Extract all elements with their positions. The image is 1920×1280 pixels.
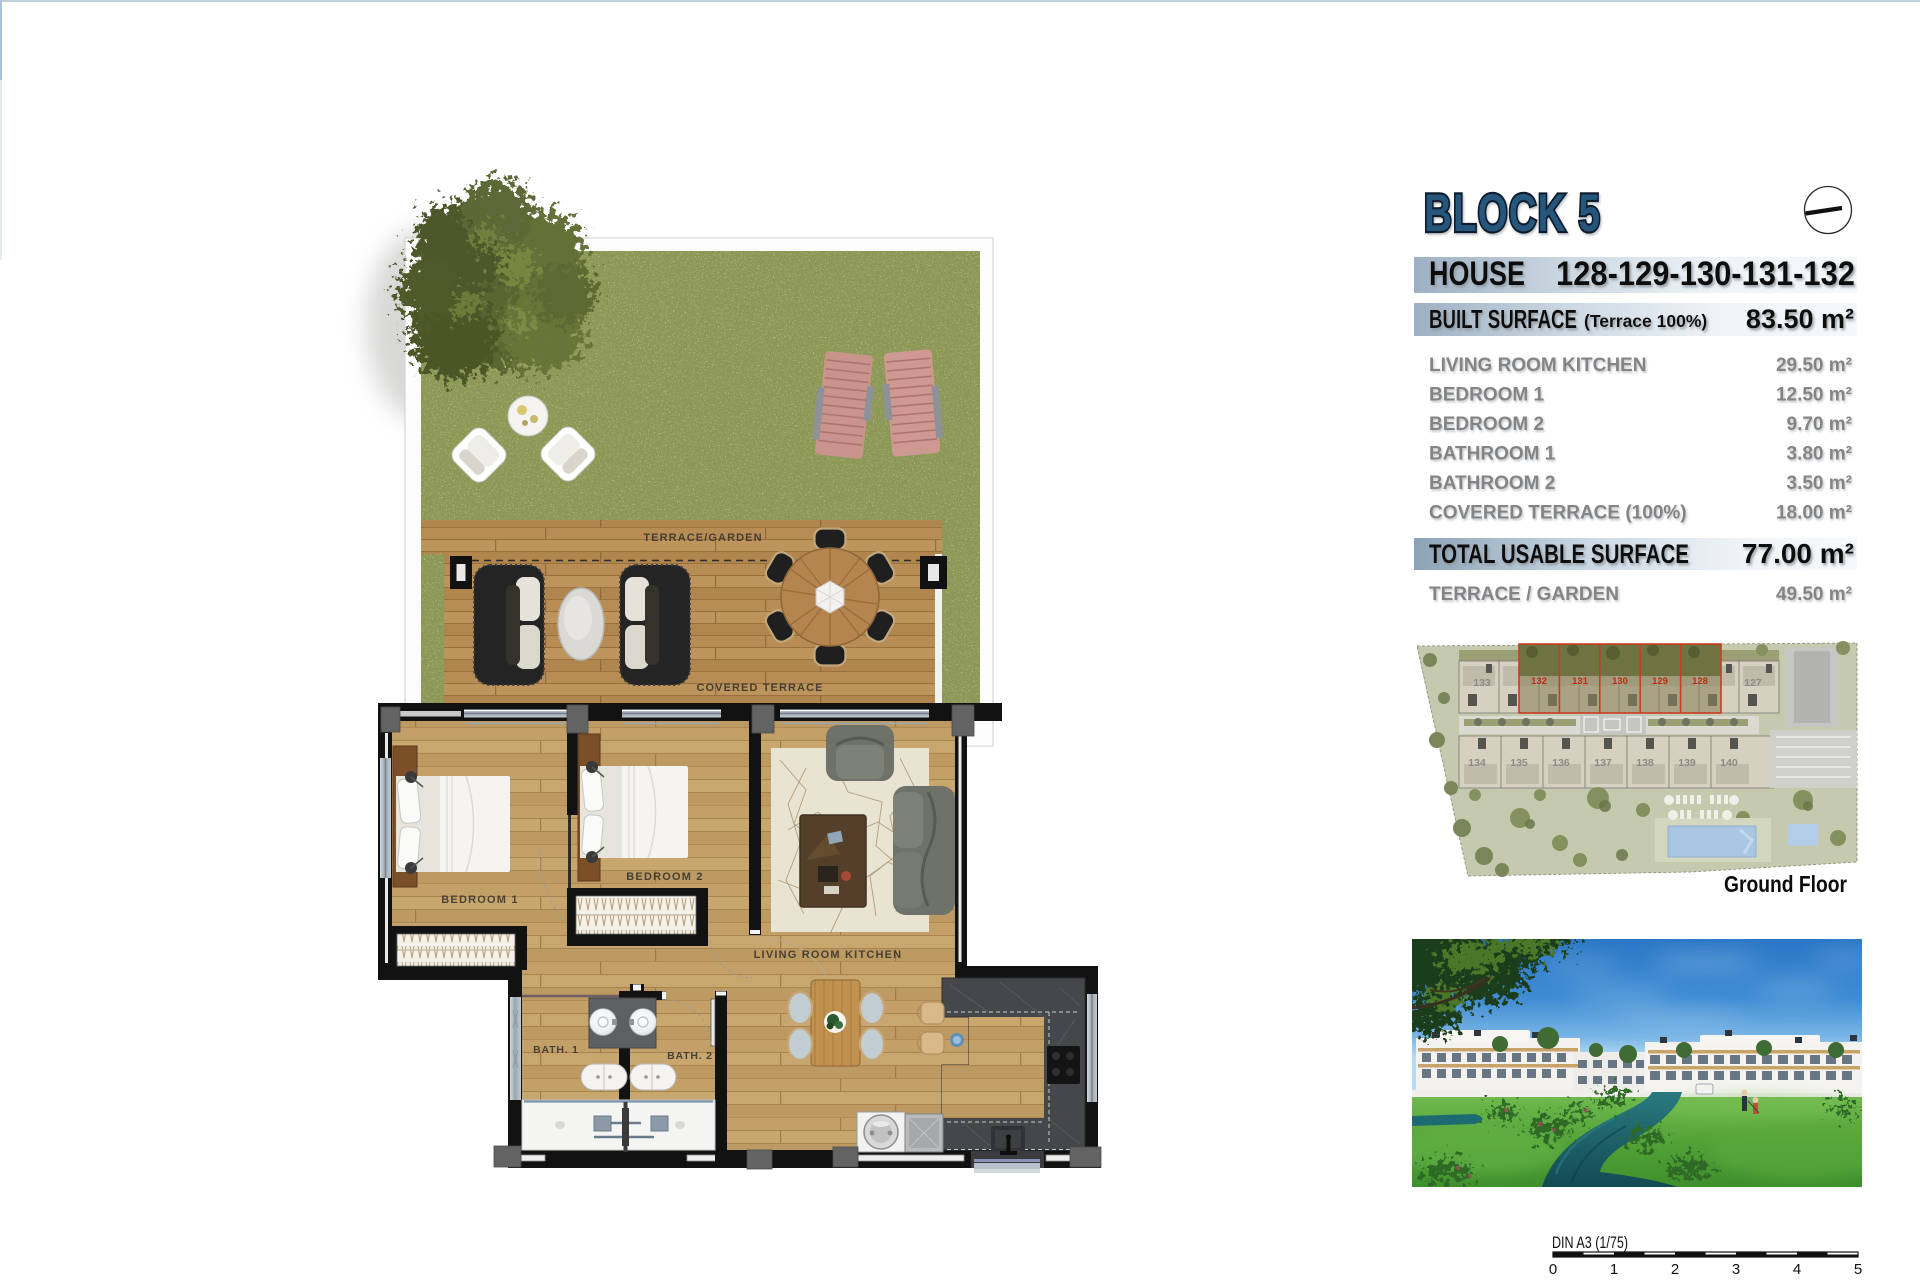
svg-text:128: 128 <box>1692 676 1708 687</box>
svg-text:3.50 m²: 3.50 m² <box>1787 473 1852 494</box>
svg-text:TERRACE/GARDEN: TERRACE/GARDEN <box>643 532 762 544</box>
svg-text:BUILT SURFACE: BUILT SURFACE <box>1429 304 1577 334</box>
svg-text:140: 140 <box>1720 757 1738 769</box>
svg-text:130: 130 <box>1612 676 1628 687</box>
svg-text:BEDROOM 2: BEDROOM 2 <box>1429 414 1544 435</box>
svg-text:BLOCK 5: BLOCK 5 <box>1424 184 1601 243</box>
svg-text:1: 1 <box>1610 1261 1618 1278</box>
svg-text:BEDROOM 1: BEDROOM 1 <box>1429 385 1545 406</box>
svg-text:DIN A3 (1/75): DIN A3 (1/75) <box>1552 1233 1628 1252</box>
svg-text:Ground Floor: Ground Floor <box>1724 871 1847 897</box>
svg-text:3.80 m²: 3.80 m² <box>1787 444 1852 465</box>
svg-text:(Terrace 100%): (Terrace 100%) <box>1584 311 1707 331</box>
svg-text:BEDROOM 1: BEDROOM 1 <box>441 894 518 906</box>
svg-text:4: 4 <box>1793 1261 1801 1278</box>
svg-text:COVERED TERRACE (100%): COVERED TERRACE (100%) <box>1429 503 1687 524</box>
svg-text:127: 127 <box>1744 677 1762 689</box>
svg-text:BATHROOM 2: BATHROOM 2 <box>1429 473 1555 494</box>
svg-text:0: 0 <box>1549 1261 1557 1278</box>
svg-text:138: 138 <box>1636 757 1654 769</box>
svg-text:HOUSE: HOUSE <box>1429 255 1525 293</box>
svg-text:2: 2 <box>1671 1261 1679 1278</box>
svg-text:BATHROOM 1: BATHROOM 1 <box>1429 444 1556 465</box>
svg-text:132: 132 <box>1531 676 1547 687</box>
svg-text:29.50 m²: 29.50 m² <box>1776 355 1852 376</box>
svg-text:129: 129 <box>1652 676 1668 687</box>
svg-text:TOTAL USABLE SURFACE: TOTAL USABLE SURFACE <box>1429 539 1689 569</box>
svg-text:77.00 m²: 77.00 m² <box>1742 538 1854 569</box>
svg-text:83.50 m²: 83.50 m² <box>1746 304 1854 334</box>
svg-text:BATH. 2: BATH. 2 <box>667 1050 713 1062</box>
svg-text:BEDROOM 2: BEDROOM 2 <box>626 871 703 883</box>
svg-text:BATH. 1: BATH. 1 <box>533 1044 579 1056</box>
svg-text:134: 134 <box>1468 757 1486 769</box>
svg-text:128-129-130-131-132: 128-129-130-131-132 <box>1556 255 1855 293</box>
svg-text:LIVING ROOM KITCHEN: LIVING ROOM KITCHEN <box>754 949 903 961</box>
svg-text:TERRACE / GARDEN: TERRACE / GARDEN <box>1429 584 1619 605</box>
svg-text:12.50 m²: 12.50 m² <box>1776 385 1852 406</box>
svg-text:18.00 m²: 18.00 m² <box>1776 503 1852 524</box>
svg-text:5: 5 <box>1854 1261 1862 1278</box>
svg-text:139: 139 <box>1678 757 1696 769</box>
svg-text:49.50 m²: 49.50 m² <box>1776 584 1852 605</box>
svg-text:LIVING ROOM KITCHEN: LIVING ROOM KITCHEN <box>1429 355 1646 376</box>
svg-text:COVERED TERRACE: COVERED TERRACE <box>696 682 823 694</box>
svg-text:133: 133 <box>1473 677 1491 689</box>
svg-text:137: 137 <box>1594 757 1612 769</box>
svg-text:135: 135 <box>1510 757 1528 769</box>
svg-text:131: 131 <box>1572 676 1589 687</box>
svg-text:3: 3 <box>1732 1261 1740 1278</box>
svg-text:136: 136 <box>1552 757 1570 769</box>
svg-text:9.70 m²: 9.70 m² <box>1787 414 1852 435</box>
